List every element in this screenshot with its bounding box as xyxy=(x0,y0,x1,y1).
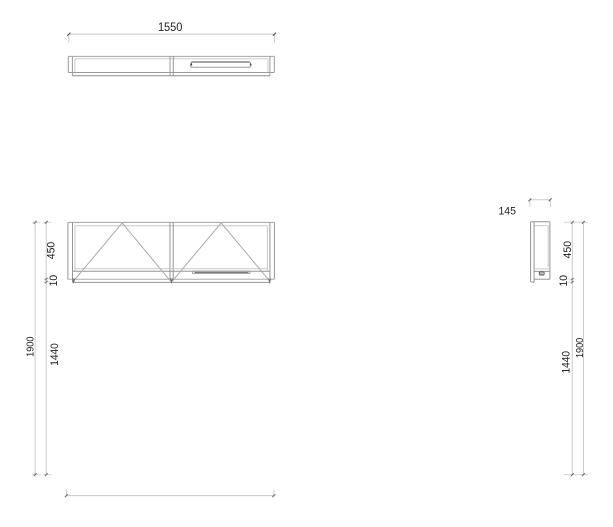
svg-text:1440: 1440 xyxy=(561,351,573,374)
svg-text:450: 450 xyxy=(562,241,574,259)
svg-text:10: 10 xyxy=(558,275,570,287)
svg-text:450: 450 xyxy=(46,242,58,260)
svg-text:1900: 1900 xyxy=(24,336,36,356)
svg-text:10: 10 xyxy=(48,275,60,287)
svg-text:145: 145 xyxy=(498,205,516,217)
svg-text:1440: 1440 xyxy=(49,343,61,366)
svg-text:1550: 1550 xyxy=(158,20,183,34)
svg-text:1900: 1900 xyxy=(574,338,586,358)
